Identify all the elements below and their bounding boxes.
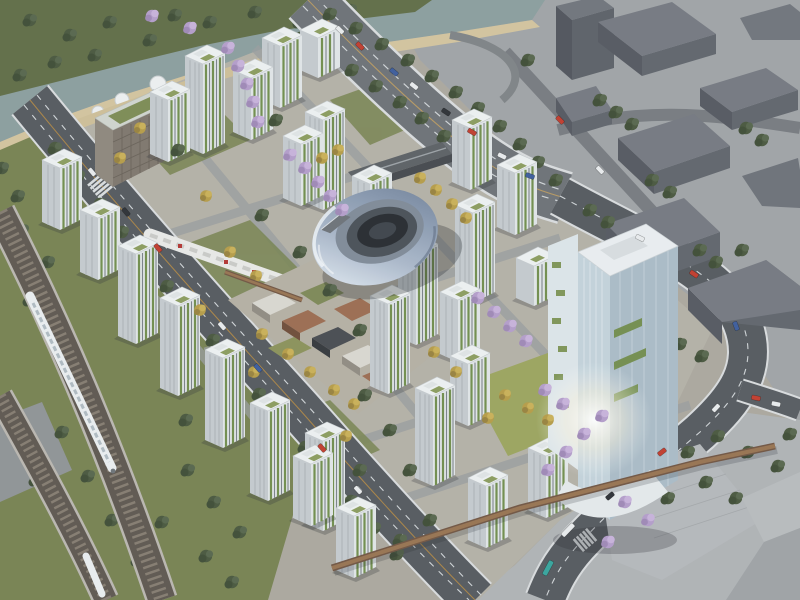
haze-overlay <box>0 0 800 600</box>
rendering-canvas <box>0 0 800 600</box>
